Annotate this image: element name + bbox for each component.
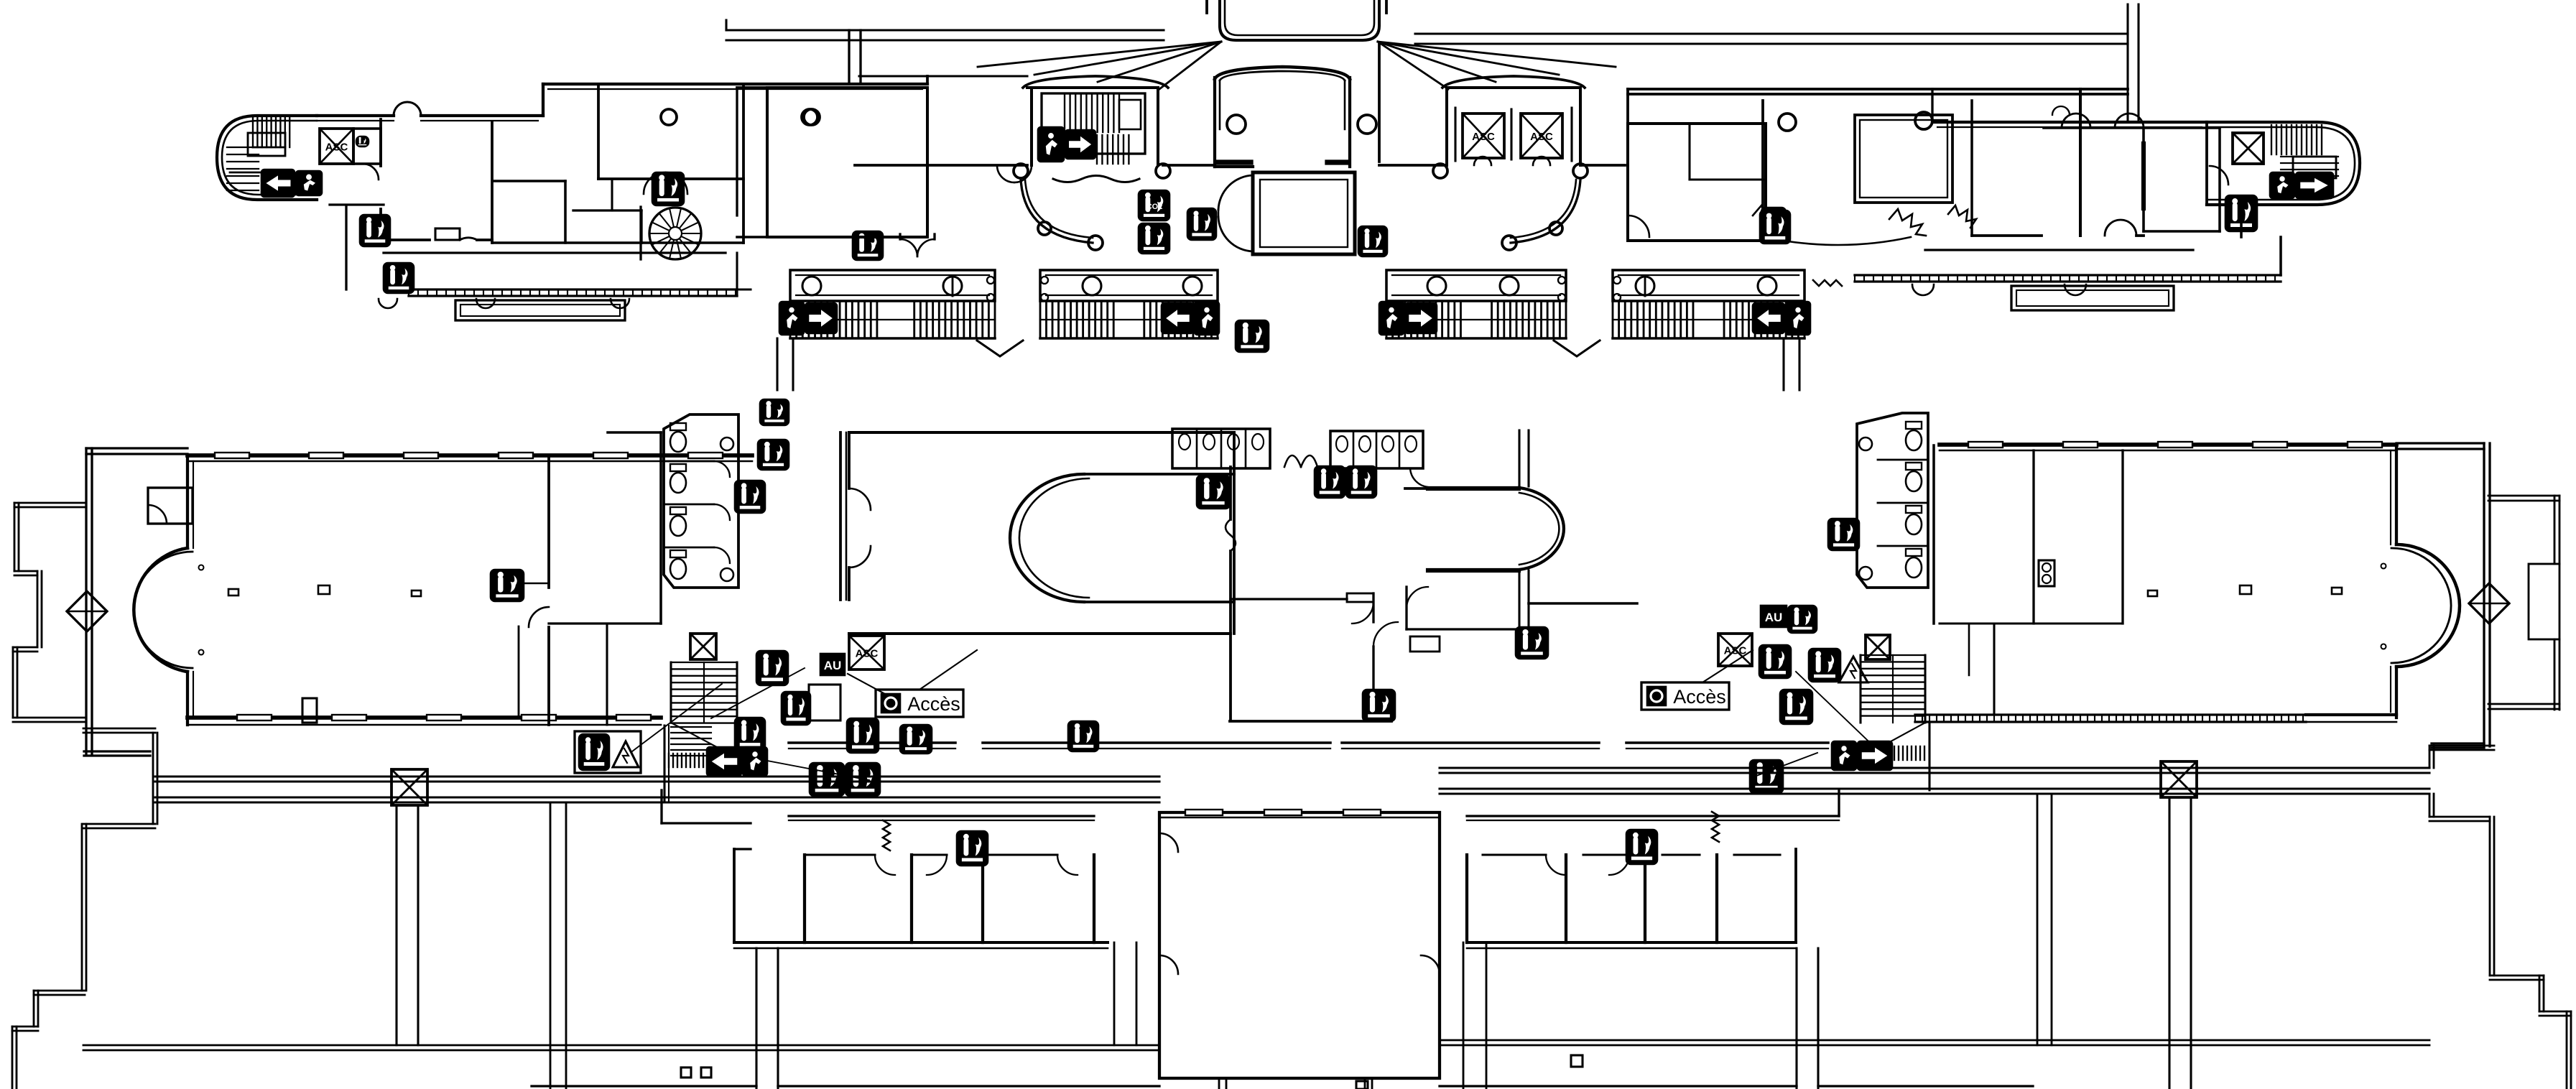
svg-text:AU: AU	[1765, 611, 1783, 624]
svg-text:ASC: ASC	[1724, 645, 1747, 657]
svg-text:Accès: Accès	[907, 693, 960, 715]
svg-text:ASC: ASC	[1472, 131, 1495, 143]
svg-text:ASC: ASC	[325, 142, 348, 154]
svg-text:ASC: ASC	[1530, 131, 1553, 143]
svg-text:ASC: ASC	[856, 648, 879, 660]
svg-text:CO2: CO2	[1146, 203, 1163, 211]
svg-text:AU: AU	[824, 659, 842, 672]
svg-text:Accès: Accès	[1673, 686, 1726, 708]
